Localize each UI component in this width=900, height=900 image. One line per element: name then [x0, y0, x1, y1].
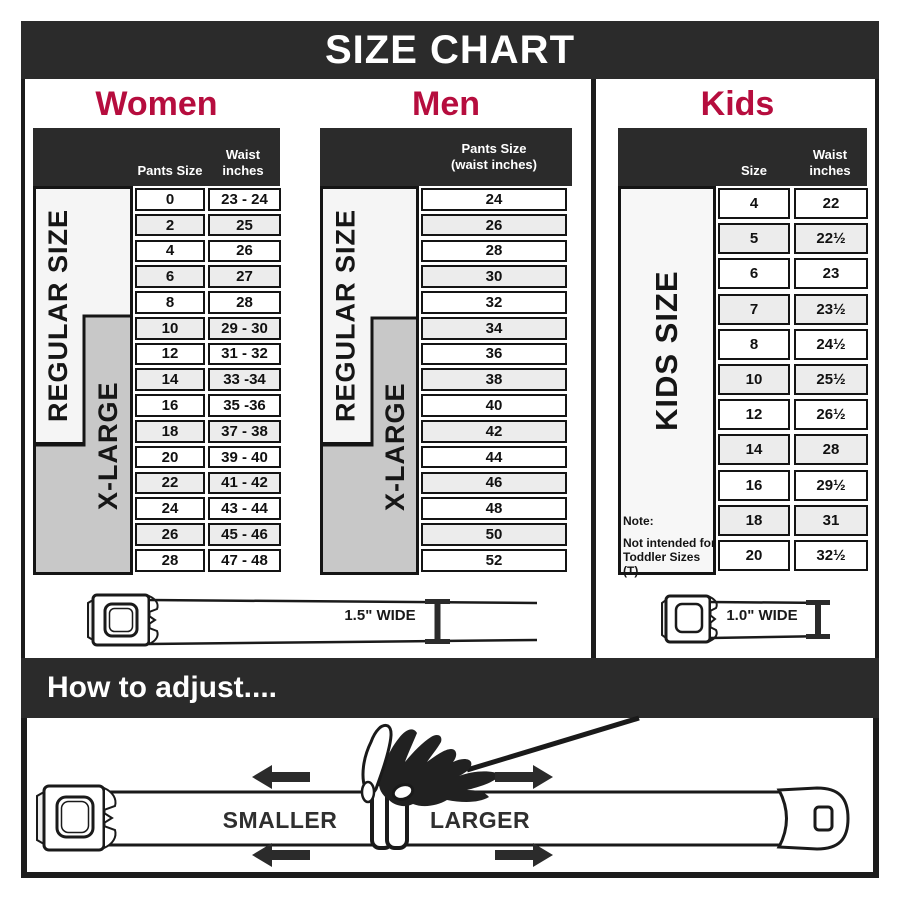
table-cell: 5 — [718, 223, 790, 254]
women-col2-header: Waist inches — [211, 147, 275, 180]
table-cell: 18 — [718, 505, 790, 536]
right-border — [875, 79, 879, 658]
table-row: 28 — [421, 240, 567, 263]
table-cell: 32 — [421, 291, 567, 314]
table-row: 1029 - 30 — [135, 317, 281, 340]
kids-note-title: Note: — [623, 514, 718, 528]
table-cell: 46 — [421, 472, 567, 495]
table-cell: 16 — [135, 394, 205, 417]
women-heading: Women — [33, 84, 280, 124]
kids-note-line2: Toddler Sizes (T) — [623, 550, 718, 578]
table-cell: 24 — [135, 497, 205, 520]
arrow-left-icon — [252, 843, 310, 867]
table-row: 023 - 24 — [135, 188, 281, 211]
table-cell: 30 — [421, 265, 567, 288]
table-row: 1231 - 32 — [135, 343, 281, 366]
table-cell: 8 — [135, 291, 205, 314]
larger-label: LARGER — [410, 805, 550, 835]
adult-belt-width-label: 1.5" WIDE — [330, 607, 430, 624]
table-cell: 28 — [135, 549, 205, 572]
table-cell: 4 — [718, 188, 790, 219]
table-cell: 10 — [135, 317, 205, 340]
table-cell: 23 - 24 — [208, 188, 281, 211]
table-cell: 20 — [135, 446, 205, 469]
table-cell: 38 — [421, 368, 567, 391]
table-row: 623 — [718, 258, 868, 289]
men-heading: Men — [320, 84, 572, 124]
table-row: 50 — [421, 523, 567, 546]
width-measure-icon — [806, 600, 830, 639]
table-cell: 6 — [135, 265, 205, 288]
table-row: 24 — [421, 188, 567, 211]
table-cell: 12 — [135, 343, 205, 366]
adjust-diagram — [27, 718, 873, 866]
table-row: 225 — [135, 214, 281, 237]
women-table-header: Pants Size Waist inches — [33, 128, 280, 186]
table-cell: 22 — [794, 188, 868, 219]
table-cell: 35 -36 — [208, 394, 281, 417]
table-cell: 26½ — [794, 399, 868, 430]
table-cell: 22½ — [794, 223, 868, 254]
table-cell: 12 — [718, 399, 790, 430]
table-cell: 32½ — [794, 540, 868, 571]
size-chart-sheet: SIZE CHART Women Men Kids Pants Size Wai… — [0, 0, 900, 900]
table-row: 1837 - 38 — [135, 420, 281, 443]
page-title: SIZE CHART — [21, 21, 879, 79]
left-border — [21, 79, 25, 658]
table-row: 44 — [421, 446, 567, 469]
table-cell: 20 — [718, 540, 790, 571]
table-row: 2645 - 46 — [135, 523, 281, 546]
women-xlarge-label: X-LARGE — [84, 316, 133, 575]
arrow-right-icon — [495, 843, 553, 867]
table-cell: 24 — [421, 188, 567, 211]
table-row: 824½ — [718, 329, 868, 360]
table-cell: 33 -34 — [208, 368, 281, 391]
seatbelt-buckle-icon — [88, 595, 158, 645]
table-cell: 28 — [794, 434, 868, 465]
men-table: 242628303234363840424446485052 — [421, 188, 567, 575]
table-cell: 14 — [718, 434, 790, 465]
table-cell: 6 — [718, 258, 790, 289]
table-cell: 40 — [421, 394, 567, 417]
table-row: 2847 - 48 — [135, 549, 281, 572]
table-row: 52 — [421, 549, 567, 572]
table-row: 828 — [135, 291, 281, 314]
table-cell: 44 — [421, 446, 567, 469]
table-cell: 43 - 44 — [208, 497, 281, 520]
seatbelt-buckle-icon — [662, 596, 717, 642]
belt-tip-hole — [815, 807, 832, 830]
table-cell: 34 — [421, 317, 567, 340]
table-cell: 31 - 32 — [208, 343, 281, 366]
table-cell: 42 — [421, 420, 567, 443]
kids-belt-width-label: 1.0" WIDE — [720, 607, 804, 624]
adjust-heading: How to adjust.... — [21, 658, 879, 718]
men-col-header: Pants Size (waist inches) — [442, 141, 546, 174]
table-cell: 18 — [135, 420, 205, 443]
table-cell: 26 — [421, 214, 567, 237]
table-cell: 25 — [208, 214, 281, 237]
table-row: 38 — [421, 368, 567, 391]
table-cell: 7 — [718, 294, 790, 325]
table-row: 26 — [421, 214, 567, 237]
kids-col1-header: Size — [718, 163, 790, 179]
table-cell: 41 - 42 — [208, 472, 281, 495]
table-row: 1635 -36 — [135, 394, 281, 417]
table-cell: 36 — [421, 343, 567, 366]
table-row: 42 — [421, 420, 567, 443]
women-regular-size-label: REGULAR SIZE — [33, 186, 84, 445]
table-cell: 2 — [135, 214, 205, 237]
table-cell: 26 — [208, 240, 281, 263]
table-cell: 45 - 46 — [208, 523, 281, 546]
kids-note: Note: Not intended for Toddler Sizes (T) — [623, 514, 718, 578]
men-xlarge-label: X-LARGE — [372, 318, 419, 575]
table-cell: 16 — [718, 470, 790, 501]
table-row: 2039 - 40 — [135, 446, 281, 469]
table-cell: 27 — [208, 265, 281, 288]
table-row: 2241 - 42 — [135, 472, 281, 495]
table-row: 1433 -34 — [135, 368, 281, 391]
table-cell: 22 — [135, 472, 205, 495]
table-cell: 25½ — [794, 364, 868, 395]
table-row: 723½ — [718, 294, 868, 325]
arrow-right-icon — [495, 765, 553, 789]
kids-heading: Kids — [596, 84, 879, 124]
table-row: 2032½ — [718, 540, 868, 571]
table-row: 1831 — [718, 505, 868, 536]
table-row: 30 — [421, 265, 567, 288]
table-cell: 14 — [135, 368, 205, 391]
table-cell: 29 - 30 — [208, 317, 281, 340]
table-cell: 52 — [421, 549, 567, 572]
table-cell: 0 — [135, 188, 205, 211]
table-row: 34 — [421, 317, 567, 340]
men-regular-size-label: REGULAR SIZE — [320, 186, 372, 445]
women-table: 023 - 242254266278281029 - 301231 - 3214… — [135, 188, 281, 575]
men-kids-divider — [591, 79, 596, 658]
table-row: 426 — [135, 240, 281, 263]
table-cell: 24½ — [794, 329, 868, 360]
table-row: 1428 — [718, 434, 868, 465]
table-row: 46 — [421, 472, 567, 495]
arrow-left-icon — [252, 765, 310, 789]
table-cell: 31 — [794, 505, 868, 536]
table-cell: 28 — [208, 291, 281, 314]
belt-strap-top-edge — [149, 600, 537, 603]
table-cell: 23 — [794, 258, 868, 289]
table-cell: 48 — [421, 497, 567, 520]
smaller-label: SMALLER — [210, 805, 350, 835]
men-table-header: Pants Size (waist inches) — [320, 128, 572, 186]
table-cell: 47 - 48 — [208, 549, 281, 572]
table-row: 1025½ — [718, 364, 868, 395]
kids-size-label: KIDS SIZE — [618, 186, 716, 516]
table-row: 48 — [421, 497, 567, 520]
table-cell: 10 — [718, 364, 790, 395]
table-row: 1629½ — [718, 470, 868, 501]
table-row: 40 — [421, 394, 567, 417]
pulled-strap-line — [467, 718, 639, 770]
table-cell: 4 — [135, 240, 205, 263]
table-row: 422 — [718, 188, 868, 219]
table-cell: 28 — [421, 240, 567, 263]
table-row: 36 — [421, 343, 567, 366]
adult-belt-graphic — [85, 588, 545, 652]
kids-col2-header: Waist inches — [800, 147, 860, 180]
table-row: 522½ — [718, 223, 868, 254]
belt-strap-bottom-edge — [149, 640, 537, 644]
table-row: 32 — [421, 291, 567, 314]
kids-table-header: Size Waist inches — [618, 128, 867, 186]
seatbelt-buckle-icon — [37, 786, 116, 850]
women-col1-header: Pants Size — [133, 163, 207, 179]
table-cell: 29½ — [794, 470, 868, 501]
table-cell: 50 — [421, 523, 567, 546]
table-row: 627 — [135, 265, 281, 288]
table-cell: 23½ — [794, 294, 868, 325]
table-row: 1226½ — [718, 399, 868, 430]
table-row: 2443 - 44 — [135, 497, 281, 520]
table-cell: 8 — [718, 329, 790, 360]
table-cell: 26 — [135, 523, 205, 546]
table-cell: 39 - 40 — [208, 446, 281, 469]
kids-note-line1: Not intended for — [623, 536, 718, 550]
kids-table: 422522½623723½824½1025½1226½14281629½183… — [718, 188, 868, 575]
table-cell: 37 - 38 — [208, 420, 281, 443]
